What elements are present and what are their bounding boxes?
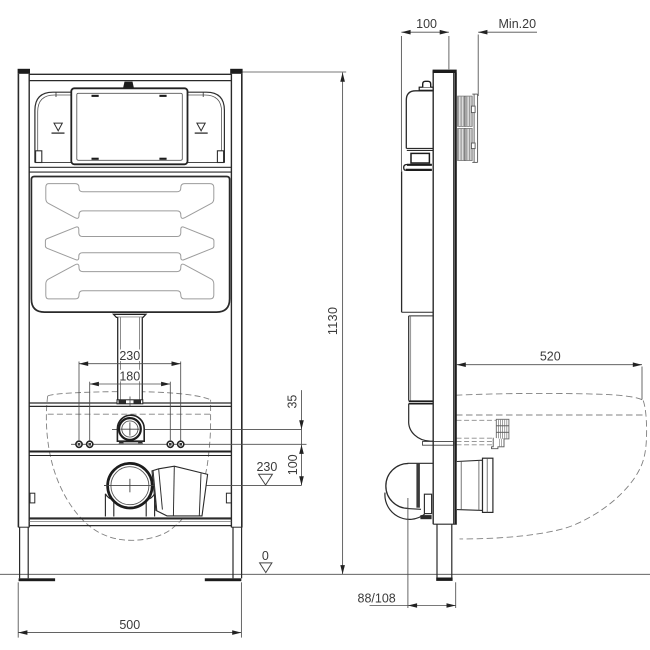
svg-text:230: 230 xyxy=(256,460,277,474)
svg-text:100: 100 xyxy=(286,454,300,475)
svg-text:0: 0 xyxy=(262,549,269,563)
svg-text:230: 230 xyxy=(119,349,140,363)
svg-text:520: 520 xyxy=(540,349,561,363)
svg-text:180: 180 xyxy=(119,369,140,383)
svg-text:100: 100 xyxy=(416,17,437,31)
svg-text:1130: 1130 xyxy=(326,307,340,335)
svg-text:35: 35 xyxy=(286,395,300,409)
svg-text:Min.20: Min.20 xyxy=(499,17,537,31)
svg-text:500: 500 xyxy=(119,618,140,632)
svg-text:88/108: 88/108 xyxy=(358,591,396,605)
